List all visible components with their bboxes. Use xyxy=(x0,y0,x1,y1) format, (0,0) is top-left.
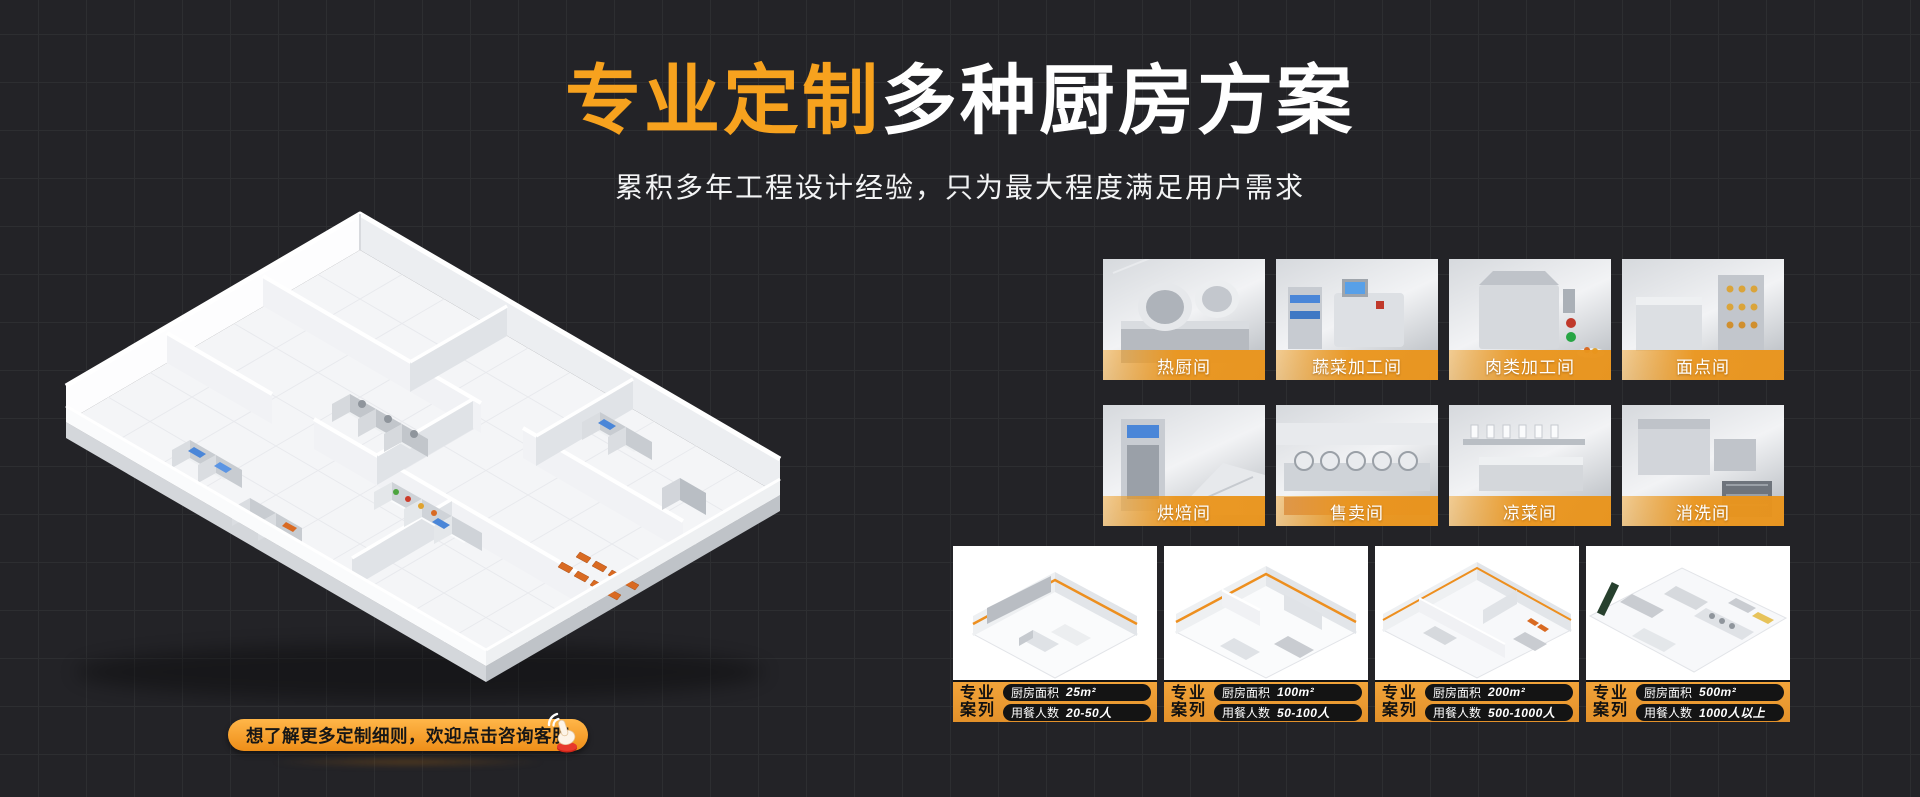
room-tile-label: 凉菜间 xyxy=(1449,496,1611,526)
case-badge: 专业 案列 xyxy=(1382,685,1418,720)
diners-pill: 用餐人数500-1000人 xyxy=(1425,704,1573,721)
room-tile-label: 肉类加工间 xyxy=(1449,350,1611,380)
room-tile-meat-processing[interactable]: 肉类加工间 xyxy=(1449,259,1611,380)
kitchen-floorplan-illustration xyxy=(40,200,810,705)
room-tile-hot-kitchen[interactable]: 热厨间 xyxy=(1103,259,1265,380)
room-tile-vegetable-processing[interactable]: 蔬菜加工间 xyxy=(1276,259,1438,380)
room-tile-label: 烘焙间 xyxy=(1103,496,1265,526)
case-card-image xyxy=(1164,546,1368,680)
case-card-500m2[interactable]: 专业 案列 厨房面积500m² 用餐人数1000人以上 xyxy=(1586,546,1790,722)
room-tiles-grid: 热厨间 蔬菜加工间 肉类加工间 xyxy=(1103,259,1784,526)
hand-click-icon xyxy=(540,711,586,757)
kitchen-area-pill: 厨房面积200m² xyxy=(1425,684,1573,701)
case-card-footer: 专业 案列 厨房面积200m² 用餐人数500-1000人 xyxy=(1375,680,1579,722)
kitchen-area-pill: 厨房面积25m² xyxy=(1003,684,1151,701)
diners-pill: 用餐人数1000人以上 xyxy=(1636,704,1784,721)
hero-banner: 专业定制多种厨房方案 累积多年工程设计经验，只为最大程度满足用户需求 xyxy=(0,0,1920,797)
room-tile-label: 热厨间 xyxy=(1103,350,1265,380)
diners-pill: 用餐人数20-50人 xyxy=(1003,704,1151,721)
case-card-footer: 专业 案列 厨房面积25m² 用餐人数20-50人 xyxy=(953,680,1157,722)
title-accent: 专业定制 xyxy=(565,59,881,144)
room-tile-dishwashing[interactable]: 消洗间 xyxy=(1622,405,1784,526)
case-badge: 专业 案列 xyxy=(1171,685,1207,720)
title-main: 多种厨房方案 xyxy=(881,59,1355,144)
room-tile-label: 消洗间 xyxy=(1622,496,1784,526)
room-tile-serving[interactable]: 售卖间 xyxy=(1276,405,1438,526)
room-tile-cold-dishes[interactable]: 凉菜间 xyxy=(1449,405,1611,526)
case-card-footer: 专业 案列 厨房面积100m² 用餐人数50-100人 xyxy=(1164,680,1368,722)
room-tile-label: 蔬菜加工间 xyxy=(1276,350,1438,380)
room-tile-baking[interactable]: 烘焙间 xyxy=(1103,405,1265,526)
case-card-image xyxy=(1586,546,1790,680)
page-title: 专业定制多种厨房方案 xyxy=(0,58,1920,145)
room-tile-label: 面点间 xyxy=(1622,350,1784,380)
case-25-floorplan-render xyxy=(953,546,1157,680)
case-cards-row: 专业 案列 厨房面积25m² 用餐人数20-50人 xyxy=(953,546,1790,722)
cta-label: 想了解更多定制细则，欢迎点击咨询客服 xyxy=(246,723,570,748)
case-card-100m2[interactable]: 专业 案列 厨房面积100m² 用餐人数50-100人 xyxy=(1164,546,1368,722)
case-100-floorplan-render xyxy=(1164,546,1368,680)
case-badge: 专业 案列 xyxy=(1593,685,1629,720)
room-tile-label: 售卖间 xyxy=(1276,496,1438,526)
diners-pill: 用餐人数50-100人 xyxy=(1214,704,1362,721)
case-card-image xyxy=(953,546,1157,680)
case-card-25m2[interactable]: 专业 案列 厨房面积25m² 用餐人数20-50人 xyxy=(953,546,1157,722)
case-500-floorplan-render xyxy=(1586,546,1790,680)
case-badge: 专业 案列 xyxy=(960,685,996,720)
case-card-footer: 专业 案列 厨房面积500m² 用餐人数1000人以上 xyxy=(1586,680,1790,722)
case-card-image xyxy=(1375,546,1579,680)
consult-cta-button[interactable]: 想了解更多定制细则，欢迎点击咨询客服 xyxy=(228,719,588,751)
kitchen-area-pill: 厨房面积500m² xyxy=(1636,684,1784,701)
kitchen-area-pill: 厨房面积100m² xyxy=(1214,684,1362,701)
case-200-floorplan-render xyxy=(1375,546,1579,680)
room-tile-pastry[interactable]: 面点间 xyxy=(1622,259,1784,380)
case-card-200m2[interactable]: 专业 案列 厨房面积200m² 用餐人数500-1000人 xyxy=(1375,546,1579,722)
